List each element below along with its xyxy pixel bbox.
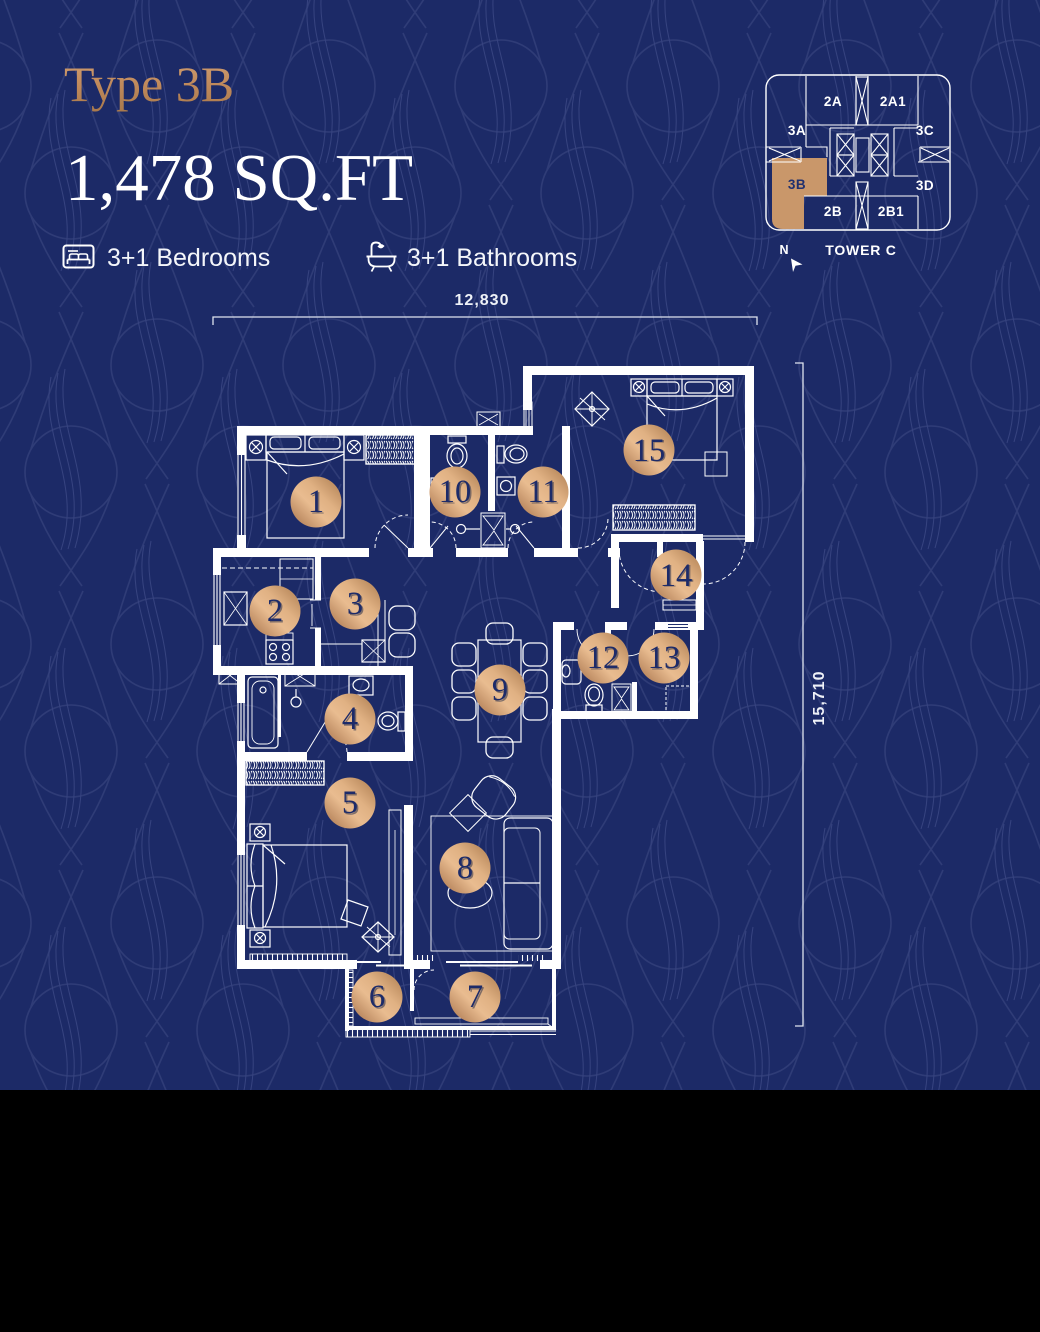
svg-text:2A: 2A [824, 94, 842, 109]
svg-text:1: 1 [308, 484, 324, 520]
svg-text:13: 13 [648, 640, 681, 676]
svg-text:Type 3B: Type 3B [64, 56, 234, 112]
svg-text:3B: 3B [788, 177, 806, 192]
svg-text:3C: 3C [916, 123, 934, 138]
svg-text:15,710: 15,710 [811, 671, 828, 726]
svg-text:N: N [779, 243, 788, 257]
svg-text:8: 8 [457, 850, 473, 886]
svg-text:3A: 3A [788, 123, 806, 138]
svg-text:3: 3 [347, 586, 363, 622]
svg-text:15: 15 [633, 433, 666, 469]
svg-text:12,830: 12,830 [455, 292, 510, 309]
svg-text:7: 7 [467, 979, 483, 1015]
svg-text:3D: 3D [916, 178, 934, 193]
svg-text:12: 12 [587, 640, 620, 676]
svg-text:6: 6 [369, 979, 385, 1015]
svg-text:2B: 2B [824, 204, 842, 219]
svg-text:3+1 Bathrooms: 3+1 Bathrooms [407, 244, 577, 272]
svg-text:5: 5 [342, 785, 358, 821]
svg-text:2A1: 2A1 [880, 94, 906, 109]
svg-text:9: 9 [492, 672, 508, 708]
svg-text:3+1 Bedrooms: 3+1 Bedrooms [107, 244, 270, 272]
svg-text:2: 2 [267, 593, 283, 629]
svg-text:4: 4 [342, 701, 358, 737]
svg-text:11: 11 [527, 474, 558, 510]
svg-text:1,478 SQ.FT: 1,478 SQ.FT [65, 141, 413, 215]
svg-text:TOWER C: TOWER C [825, 242, 896, 258]
svg-text:14: 14 [660, 558, 693, 594]
svg-text:10: 10 [439, 474, 472, 510]
svg-text:2B1: 2B1 [878, 204, 904, 219]
